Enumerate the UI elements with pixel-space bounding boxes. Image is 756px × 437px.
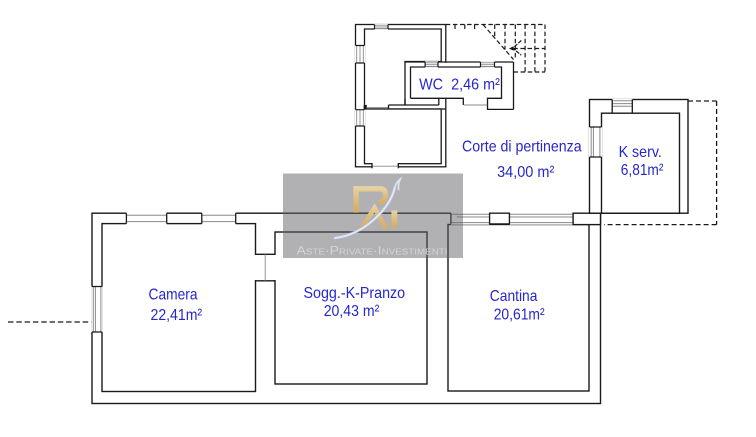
svg-text:WC 2,46 m²: WC 2,46 m² [419,77,500,94]
svg-text:Cantina: Cantina [490,288,538,305]
svg-text:K serv.: K serv. [619,144,662,161]
svg-text:22,41m²: 22,41m² [151,307,203,324]
svg-text:34,00 m²: 34,00 m² [497,164,555,181]
svg-text:Aste·Private·Investimenti: Aste·Private·Investimenti [297,245,448,257]
svg-text:Sogg.-K-Pranzo: Sogg.-K-Pranzo [304,285,406,302]
svg-text:20,61m²: 20,61m² [494,307,545,324]
svg-text:Camera: Camera [149,287,198,304]
svg-text:6,81m²: 6,81m² [621,162,664,179]
svg-text:20,43 m²: 20,43 m² [324,303,380,320]
svg-text:Corte di pertinenza: Corte di pertinenza [462,139,582,156]
